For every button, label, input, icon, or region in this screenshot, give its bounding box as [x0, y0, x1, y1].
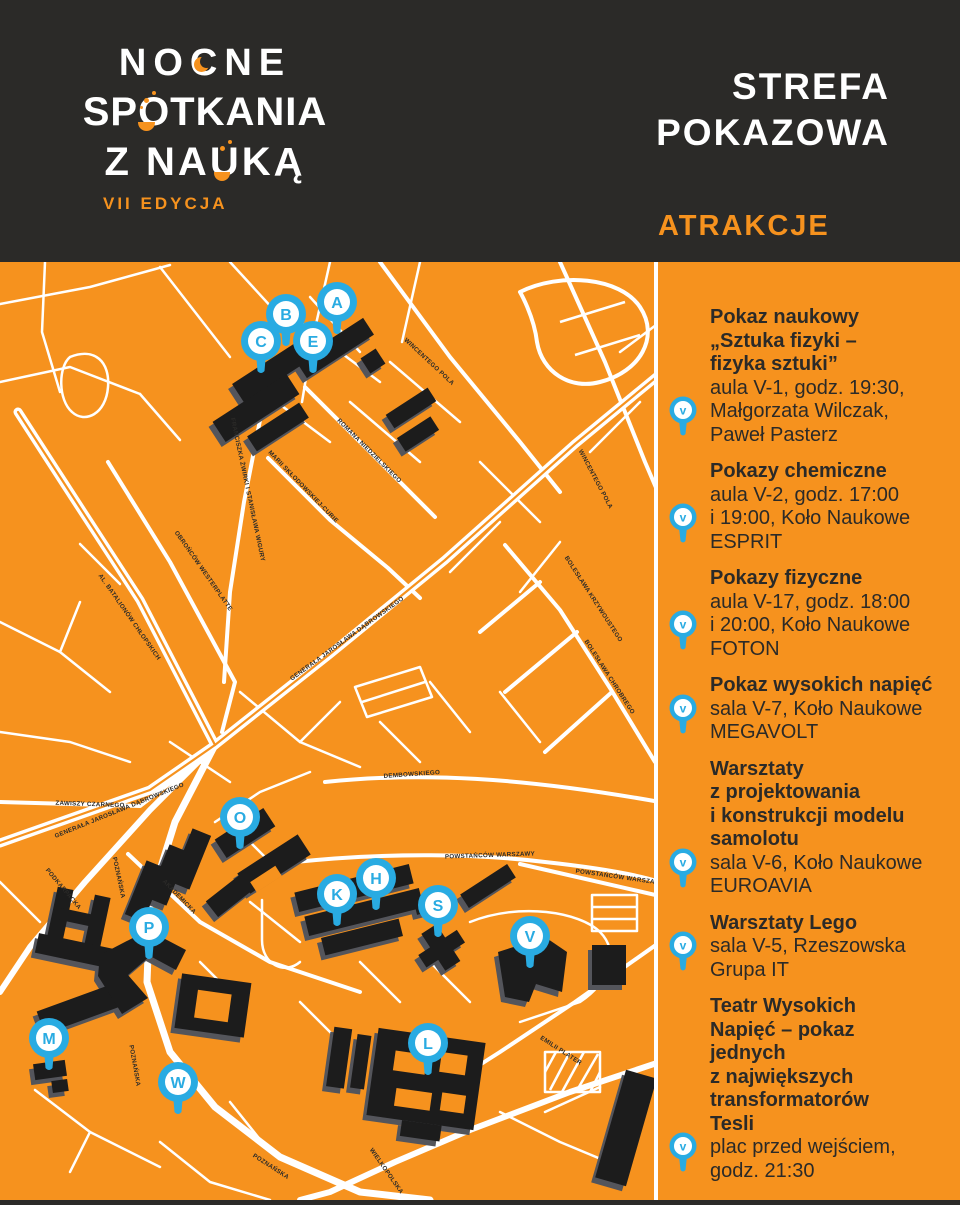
attraction-detail-line: plac przed wejściem,v: [710, 1136, 950, 1160]
attraction-item: Teatr WysokichNapięć – pokazjednychz naj…: [710, 995, 950, 1183]
attraction-detail-line: EUROAVIA: [710, 875, 950, 899]
attraction-detail-line: Grupa IT: [710, 959, 950, 983]
attraction-title-line: z projektowania: [710, 781, 950, 805]
attraction-title-line: fizyka sztuki”: [710, 353, 950, 377]
venue-pin: v: [668, 931, 698, 973]
attraction-detail-line: aula V-1, godz. 19:30,: [710, 377, 950, 401]
attraction-detail-line: i 20:00, Koło Naukowev: [710, 614, 950, 638]
venue-pin-icon: v: [668, 694, 698, 736]
attraction-item: Pokaz naukowy„Sztuka fizyki –fizyka sztu…: [710, 306, 950, 447]
flask-bubble-icon: [152, 91, 156, 95]
attraction-detail-line: i 19:00, Koło Naukowev: [710, 507, 950, 531]
svg-text:K: K: [331, 887, 343, 904]
logo-line-spotkania: SPOTKANIA: [72, 92, 338, 132]
svg-text:M: M: [42, 1031, 55, 1048]
map-svg: WINCENTEGO POLAWINCENTEGO POLAROMANA NIE…: [0, 262, 660, 1200]
zone-title: STREFA POKAZOWA: [656, 64, 890, 156]
svg-text:W: W: [170, 1075, 186, 1092]
attraction-detail-line: sala V-6, Koło Naukowev: [710, 852, 950, 876]
attraction-title-line: jednych: [710, 1042, 950, 1066]
flask-bubble-icon: [140, 106, 143, 109]
attraction-title-line: i konstrukcji modelu: [710, 805, 950, 829]
svg-text:v: v: [680, 939, 687, 953]
svg-text:A: A: [331, 295, 343, 312]
attraction-detail-line: Paweł Pasterz: [710, 424, 950, 448]
svg-text:L: L: [423, 1036, 433, 1053]
attraction-title-line: „Sztuka fizyki –: [710, 330, 950, 354]
attraction-title-line: Pokaz naukowy: [710, 306, 950, 330]
attraction-title-line: Napięć – pokaz: [710, 1019, 950, 1043]
venue-pin-icon: v: [668, 1132, 698, 1174]
attraction-detail-line: godz. 21:30: [710, 1160, 950, 1184]
attraction-detail-line: sala V-5, Rzeszowskav: [710, 935, 950, 959]
attraction-title-line: z największych: [710, 1066, 950, 1090]
attractions-sidebar: Pokaz naukowy„Sztuka fizyki –fizyka sztu…: [658, 262, 960, 1200]
svg-text:v: v: [680, 404, 687, 418]
attractions-label: ATRAKCJE: [658, 210, 830, 243]
venue-pin: v: [668, 1132, 698, 1174]
attraction-detail-line: aula V-17, godz. 18:00: [710, 591, 950, 615]
attraction-title-line: Pokazy chemiczne: [710, 460, 950, 484]
attraction-title-line: Tesli: [710, 1113, 950, 1137]
attraction-item: Warsztatyz projektowaniai konstrukcji mo…: [710, 758, 950, 899]
attraction-title-line: Pokaz wysokich napięć: [710, 674, 950, 698]
svg-text:v: v: [680, 855, 687, 869]
attraction-item: Pokazy chemiczneaula V-2, godz. 17:00i 1…: [710, 460, 950, 554]
header: NOCNE SPOTKANIA Z NAUKĄ VII EDYCJA STREF…: [0, 0, 960, 262]
zone-title-line2: POKAZOWA: [656, 110, 890, 156]
venue-pin-icon: v: [668, 503, 698, 545]
attraction-detail-line: MEGAVOLT: [710, 721, 950, 745]
logo-line-z-nauka: Z NAUKĄ: [72, 142, 338, 182]
attraction-title-line: transformatorów: [710, 1089, 950, 1113]
venue-pin: v: [668, 396, 698, 438]
poster: { "colors":{ "orange":"#F6921E", "dark":…: [0, 0, 960, 1200]
venue-pin-icon: v: [668, 848, 698, 890]
svg-text:H: H: [370, 871, 382, 888]
venue-pin-icon: v: [668, 396, 698, 438]
svg-text:C: C: [255, 334, 267, 351]
svg-text:v: v: [680, 618, 687, 632]
tube-bubble-icon: [228, 140, 232, 144]
attraction-title-line: Warsztaty: [710, 758, 950, 782]
attraction-item: Pokaz wysokich napięćsala V-7, Koło Nauk…: [710, 674, 950, 745]
venue-pin: v: [668, 848, 698, 890]
attraction-item: Warsztaty Legosala V-5, RzeszowskavGrupa…: [710, 912, 950, 983]
campus-map: WINCENTEGO POLAWINCENTEGO POLAROMANA NIE…: [0, 262, 660, 1200]
attraction-detail-line: Małgorzata Wilczak,v: [710, 400, 950, 424]
attraction-detail-line: aula V-2, godz. 17:00: [710, 484, 950, 508]
svg-text:E: E: [308, 334, 319, 351]
attraction-title-line: Pokazy fizyczne: [710, 567, 950, 591]
moon-crescent-mask: [200, 55, 213, 68]
attraction-title-line: samolotu: [710, 828, 950, 852]
logo-edition: VII EDYCJA: [72, 194, 338, 214]
venue-pin: v: [668, 503, 698, 545]
attraction-title-line: Teatr Wysokich: [710, 995, 950, 1019]
tube-bubble-icon: [220, 146, 225, 151]
attractions-list: Pokaz naukowy„Sztuka fizyki –fizyka sztu…: [710, 306, 950, 1183]
svg-text:v: v: [680, 701, 687, 715]
svg-text:P: P: [144, 920, 155, 937]
venue-pin-icon: v: [668, 610, 698, 652]
venue-pin-icon: v: [668, 931, 698, 973]
attraction-detail-line: ESPRIT: [710, 531, 950, 555]
zone-title-line1: STREFA: [656, 64, 890, 110]
svg-text:v: v: [680, 1140, 687, 1154]
svg-text:S: S: [433, 898, 444, 915]
attraction-detail-line: FOTON: [710, 638, 950, 662]
attraction-detail-line: sala V-7, Koło Naukowev: [710, 698, 950, 722]
attraction-item: Pokazy fizyczneaula V-17, godz. 18:00i 2…: [710, 567, 950, 661]
venue-pin: v: [668, 610, 698, 652]
svg-text:O: O: [234, 810, 246, 827]
attraction-title-line: Warsztaty Lego: [710, 912, 950, 936]
venue-pin: v: [668, 694, 698, 736]
svg-text:V: V: [525, 929, 536, 946]
flask-bubble-icon: [144, 98, 149, 103]
svg-text:B: B: [280, 307, 292, 324]
svg-text:v: v: [680, 511, 687, 525]
